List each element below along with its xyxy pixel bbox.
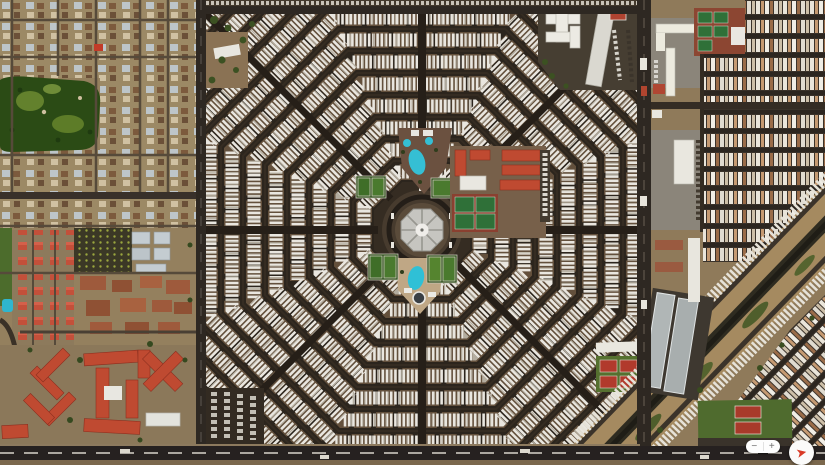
neighborhood-west — [0, 0, 196, 465]
compass-button[interactable]: ➤ — [789, 440, 814, 465]
zoom-in-button[interactable]: + — [764, 440, 781, 453]
park-sw-storage-lot — [206, 388, 264, 444]
rv-rows-top — [745, 0, 825, 54]
white-building-strip — [688, 238, 700, 302]
map-viewport: − + ➤ — [0, 0, 825, 465]
white-building — [146, 413, 180, 426]
zoom-out-button[interactable]: − — [746, 440, 763, 453]
zoom-control-pill: − + — [746, 440, 780, 453]
bottom-park-courts — [698, 399, 793, 446]
cross-road-west — [0, 192, 196, 199]
satellite-imagery-canvas[interactable] — [0, 0, 825, 465]
map-zoom-controls: − + ➤ — [746, 440, 814, 465]
green-strip — [0, 228, 12, 306]
park-ne-commercial — [538, 6, 638, 90]
tennis-courts-ne — [694, 8, 746, 56]
recreation-center — [450, 146, 550, 238]
compass-arrow-icon: ➤ — [795, 445, 808, 460]
red-cottage-rows — [12, 230, 74, 345]
golf-course — [0, 76, 100, 152]
north-road — [196, 6, 651, 14]
courtyard-pool-deck — [104, 386, 122, 400]
red-roof-house — [94, 44, 103, 51]
cross-street-east — [637, 102, 825, 109]
orchard-patch — [74, 228, 132, 272]
small-pool — [2, 299, 13, 312]
